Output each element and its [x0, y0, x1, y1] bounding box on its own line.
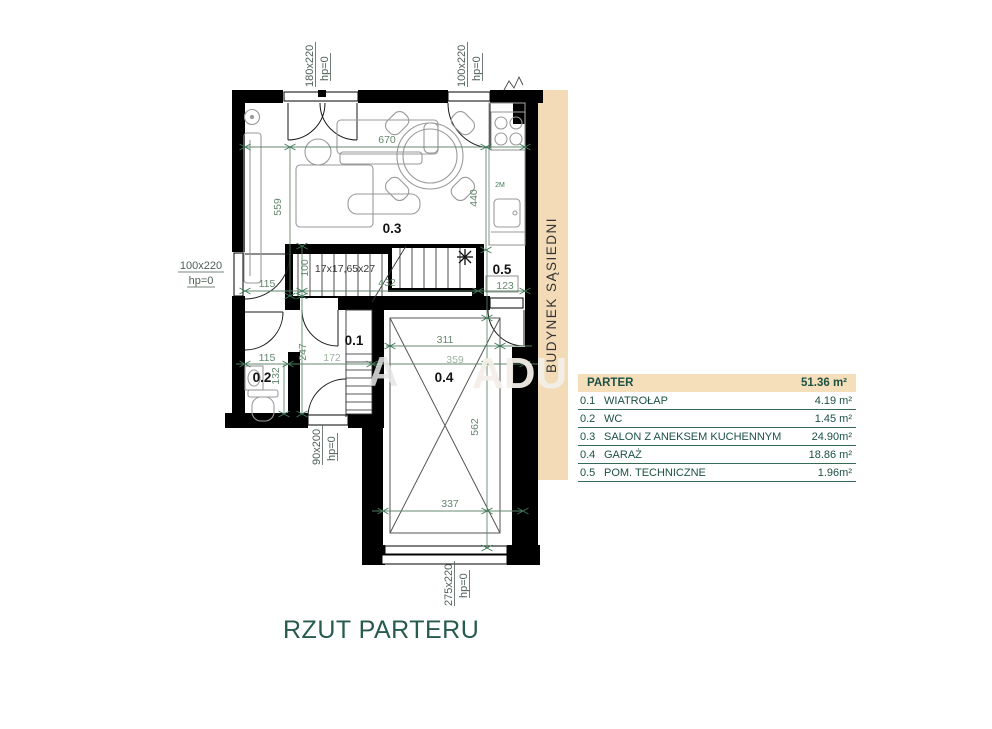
room-label-wc: 0.2 [253, 370, 272, 385]
dim-562: 562 [469, 418, 481, 436]
dim-670: 670 [378, 134, 396, 146]
room-label-salon: 0.3 [383, 221, 402, 236]
legend-header: PARTER 51.36 m² [578, 374, 856, 392]
kitchen-mark: 2M [495, 182, 505, 189]
sofa-icon [296, 120, 438, 227]
coffee-table-icon [305, 139, 331, 165]
dim-100: 100 [299, 259, 311, 277]
legend-row-name: WC [604, 413, 815, 425]
legend-row-area: 1.96m² [818, 467, 852, 479]
legend-row-area: 18.86 m² [809, 449, 852, 461]
garage-gate-size: 275x220 [443, 564, 455, 606]
watermark-fragment-right: ADU [472, 349, 567, 398]
legend-row-id: 0.5 [580, 467, 604, 479]
dim-115-low: 115 [259, 352, 276, 364]
legend-row: 0.5 POM. TECHNICZNE 1.96m² [578, 464, 856, 482]
legend-row-area: 4.19 m² [815, 395, 852, 407]
legend-header-area: 51.36 m² [801, 377, 847, 389]
dim-172: 172 [323, 352, 341, 364]
legend-row: 0.3 SALON Z ANEKSEM KUCHENNYM 24.90m² [578, 428, 856, 446]
terrace-door-hp: hp=0 [471, 56, 483, 81]
legend-row-id: 0.3 [580, 431, 604, 443]
legend-row-area: 24.90m² [812, 431, 852, 443]
room-label-tech: 0.5 [493, 262, 512, 277]
dim-440: 440 [468, 189, 480, 207]
legend-row-name: POM. TECHNICZNE [604, 467, 818, 479]
cabinet-icon [244, 133, 261, 283]
entry-door-size: 180x220 [304, 45, 316, 87]
legend-row: 0.2 WC 1.45 m² [578, 410, 856, 428]
legend-row-id: 0.4 [580, 449, 604, 461]
garage-gate-hp: hp=0 [458, 573, 470, 598]
dim-247: 247 [297, 343, 309, 361]
back-door-size: 90x200 [311, 429, 323, 465]
hall-door-opening [300, 298, 338, 310]
stairs-asterisk-icon [457, 249, 473, 265]
legend-row-area: 1.45 m² [815, 413, 852, 425]
stairs-spec: 17x17,65x27 [315, 263, 375, 275]
break-line-icon [504, 77, 523, 90]
dim-432: 432 [378, 277, 396, 289]
dining-set-icon [383, 109, 478, 204]
legend-row: 0.1 WIATROŁAP 4.19 m² [578, 392, 856, 410]
page-title: RZUT PARTERU [283, 616, 479, 645]
legend-table: PARTER 51.36 m² 0.1 WIATROŁAP 4.19 m² 0.… [578, 374, 856, 482]
legend-row-id: 0.2 [580, 413, 604, 425]
terrace-door-size: 100x220 [456, 45, 468, 87]
side-door-size: 100x220 [180, 260, 222, 272]
legend-row: 0.4 GARAŻ 18.86 m² [578, 446, 856, 464]
side-door-hp: hp=0 [189, 275, 214, 287]
room-label-garage: 0.4 [435, 370, 454, 385]
dim-115-top: 115 [259, 278, 276, 290]
dim-132: 132 [270, 367, 282, 385]
legend-row-id: 0.1 [580, 395, 604, 407]
dim-359: 359 [446, 354, 464, 366]
legend-row-name: GARAŻ [604, 449, 809, 461]
floor-plan-page: 670 440 559 115 100 432 123 115 132 247 … [0, 0, 992, 729]
dim-559: 559 [272, 198, 284, 216]
dim-311: 311 [437, 334, 454, 346]
kitchen-sink-icon [491, 199, 525, 232]
point-symbol-icon [245, 110, 260, 125]
legend-row-name: WIATROŁAP [604, 395, 815, 407]
entry-door-hp: hp=0 [319, 56, 331, 81]
back-door-hp: hp=0 [326, 436, 338, 461]
watermark-fragment-left: A [368, 348, 398, 395]
legend-row-name: SALON Z ANEKSEM KUCHENNYM [604, 431, 812, 443]
room-label-hall: 0.1 [345, 333, 364, 348]
dim-123: 123 [496, 280, 514, 292]
dim-337: 337 [441, 498, 459, 510]
floor-plan-svg: 670 440 559 115 100 432 123 115 132 247 … [0, 0, 992, 729]
legend-header-name: PARTER [587, 377, 633, 389]
